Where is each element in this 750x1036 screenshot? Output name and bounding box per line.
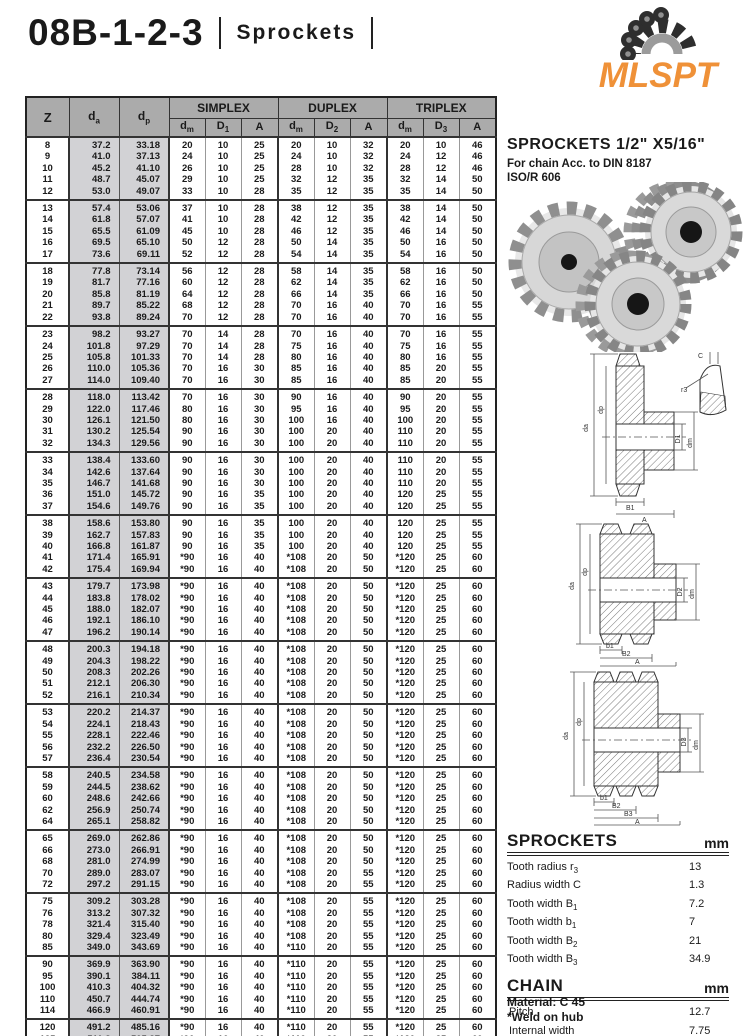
cell: *120 (387, 868, 423, 879)
cell: 16 (205, 893, 241, 907)
cell: 70 (169, 389, 205, 403)
table-row: 85349.0343.69*901640*1102055*1202560 (26, 942, 496, 956)
cell: 230.54 (119, 753, 169, 767)
cell: 16 (205, 541, 241, 552)
cell: 24 (169, 151, 205, 162)
table-row: 2085.881.19641228661435661650 (26, 289, 496, 300)
cell: 60 (459, 782, 496, 793)
cell: *90 (169, 627, 205, 641)
cell: 57 (26, 753, 69, 767)
cell: 166.8 (69, 541, 119, 552)
cell: 70 (387, 312, 423, 326)
cell: 281.0 (69, 856, 119, 867)
cell: 100 (26, 982, 69, 993)
cell: 25 (423, 593, 459, 604)
catalog-page: 08B-1-2-3 Sprockets MLSPT Z (0, 0, 750, 1036)
cell: 50 (350, 742, 387, 753)
cell: 56 (169, 263, 205, 277)
cell: 93.8 (69, 312, 119, 326)
cell: 16 (205, 489, 241, 500)
table-row: 68281.0274.99*901640*1082050*1202560 (26, 856, 496, 867)
cell: 248.6 (69, 793, 119, 804)
cell: 460.91 (119, 1005, 169, 1019)
page-subtitle: Sprockets (236, 21, 356, 45)
cell: 28 (241, 200, 278, 214)
duplex-section-diagram: da dp D2 dm b1 B2 A (540, 520, 745, 668)
spec-label: Tooth width b1 (507, 915, 689, 933)
cell: 485.16 (119, 1019, 169, 1033)
cell: 16 (205, 478, 241, 489)
cell: 60 (459, 615, 496, 626)
cell: 25 (423, 753, 459, 767)
cell: 60 (459, 830, 496, 844)
cell: *90 (169, 931, 205, 942)
cell: *108 (278, 868, 314, 879)
col-header-a: A (459, 118, 496, 137)
cell: 50 (350, 641, 387, 655)
cell: 28 (241, 300, 278, 311)
cell: *90 (169, 919, 205, 930)
cell: *120 (387, 578, 423, 592)
cell: 120 (387, 489, 423, 500)
cell: 60 (459, 1019, 496, 1033)
cell: 45 (169, 226, 205, 237)
cell: 25 (423, 868, 459, 879)
cell: *90 (169, 578, 205, 592)
cell: 206.30 (119, 678, 169, 689)
cell: 27 (26, 375, 69, 389)
cell: 16 (314, 415, 350, 426)
col-header-dm: dm (387, 118, 423, 137)
table-row: 1877.873.14561228581435581650 (26, 263, 496, 277)
cell: 25 (423, 641, 459, 655)
cell: 40 (241, 552, 278, 563)
cell: 40 (241, 856, 278, 867)
cell: 25 (423, 667, 459, 678)
cell: 50 (278, 237, 314, 248)
cell: 20 (314, 452, 350, 466)
cell: 100 (278, 501, 314, 515)
cell: 70 (387, 326, 423, 340)
cell: 138.4 (69, 452, 119, 466)
cell: 70 (169, 326, 205, 340)
cell: 50 (350, 767, 387, 781)
cell: 20 (314, 1005, 350, 1019)
row-group: 65269.0262.86*901640*1082050*12025606627… (26, 830, 496, 893)
cell: 61.8 (69, 214, 119, 225)
cell: 50 (350, 627, 387, 641)
cell: 46 (459, 151, 496, 162)
cell: 28 (241, 312, 278, 326)
cell: *120 (387, 656, 423, 667)
group-header-duplex: DUPLEX (278, 97, 387, 118)
table-row: 41171.4165.91*901640*1082050*1202560 (26, 552, 496, 563)
cell: 59 (26, 782, 69, 793)
cell: 49 (26, 656, 69, 667)
cell: 12 (314, 226, 350, 237)
cell: 10 (205, 226, 241, 237)
cell: *90 (169, 971, 205, 982)
cell: 28 (278, 163, 314, 174)
cell: 69.5 (69, 237, 119, 248)
cell: 50 (350, 816, 387, 830)
cell: 20 (314, 956, 350, 970)
cell: 50 (459, 289, 496, 300)
cell: 50 (459, 277, 496, 288)
cell: 55 (459, 489, 496, 500)
cell: 16 (205, 641, 241, 655)
dim-label-D1: D1 (675, 434, 682, 443)
cell: 274.99 (119, 856, 169, 867)
cell: 129.56 (119, 438, 169, 452)
table-row: 30126.1121.5080163010016401002055 (26, 415, 496, 426)
cell: 90 (169, 426, 205, 437)
cell: *108 (278, 753, 314, 767)
cell: 50 (350, 690, 387, 704)
cell: 165.91 (119, 552, 169, 563)
cell: *120 (387, 982, 423, 993)
spec-label: Radius width C (507, 878, 689, 896)
cell: 250.74 (119, 805, 169, 816)
cell: 40 (241, 782, 278, 793)
cell: 30 (26, 415, 69, 426)
cell: 190.14 (119, 627, 169, 641)
cell: 12 (205, 237, 241, 248)
group-header-triplex: TRIPLEX (387, 97, 496, 118)
cell: *110 (278, 1005, 314, 1019)
table-row: 110450.7444.74*901640*1102055*1202560 (26, 994, 496, 1005)
cell: 57.4 (69, 200, 119, 214)
cell: 60 (459, 667, 496, 678)
cell: 105.8 (69, 352, 119, 363)
cell: 117.46 (119, 404, 169, 415)
cell: *108 (278, 690, 314, 704)
cell: 60 (459, 604, 496, 615)
cell: 50 (350, 805, 387, 816)
cell: 20 (314, 467, 350, 478)
cell: 16 (205, 753, 241, 767)
cell: *108 (278, 719, 314, 730)
cell: 25 (423, 704, 459, 718)
cell: 20 (26, 289, 69, 300)
table-row: 1565.561.09451028461235461450 (26, 226, 496, 237)
cell: 8 (26, 137, 69, 151)
cell: 12 (205, 289, 241, 300)
cell: 35 (350, 263, 387, 277)
cell: *120 (387, 856, 423, 867)
cell: 182.07 (119, 604, 169, 615)
cell: 58 (278, 263, 314, 277)
cell: 25 (26, 352, 69, 363)
cell: 16 (205, 552, 241, 563)
cell: 14 (423, 226, 459, 237)
cell: 41.0 (69, 151, 119, 162)
cell: *108 (278, 830, 314, 844)
dim-label-da: da (583, 424, 590, 432)
cell: 297.2 (69, 879, 119, 893)
cell: 32 (350, 137, 387, 151)
cell: 61.09 (119, 226, 169, 237)
cell: 28 (241, 214, 278, 225)
cell: 25 (423, 730, 459, 741)
col-header-d3: D3 (423, 118, 459, 137)
cell: 10 (314, 151, 350, 162)
col-header-z: Z (26, 97, 69, 137)
cell: 25 (423, 552, 459, 563)
cell: 85 (278, 375, 314, 389)
cell: 40 (241, 593, 278, 604)
cell: 72 (26, 879, 69, 893)
cell: 50 (459, 214, 496, 225)
row-group: 75309.2303.28*901640*1082055*12025607631… (26, 893, 496, 956)
cell: 16 (205, 704, 241, 718)
cell: *120 (387, 627, 423, 641)
cell: 105.36 (119, 363, 169, 374)
cell: 31 (26, 426, 69, 437)
cell: 146.7 (69, 478, 119, 489)
cell: *120 (387, 956, 423, 970)
cell: 289.0 (69, 868, 119, 879)
cell: 70 (387, 300, 423, 311)
cell: 16 (205, 389, 241, 403)
table-row: 50208.3202.26*901640*1082050*1202560 (26, 667, 496, 678)
cell: *110 (278, 994, 314, 1005)
cell: *120 (387, 931, 423, 942)
cell: 35 (350, 226, 387, 237)
cell: 60 (459, 956, 496, 970)
cell: 78 (26, 919, 69, 930)
spec-value: 7 (689, 915, 729, 933)
cell: 45.2 (69, 163, 119, 174)
cell: 66 (387, 289, 423, 300)
cell: 47 (26, 627, 69, 641)
cell: *90 (169, 552, 205, 563)
cell: 466.9 (69, 1005, 119, 1019)
cell: *110 (278, 971, 314, 982)
cell: 80 (26, 931, 69, 942)
cell: 35 (278, 186, 314, 200)
cell: 80 (278, 352, 314, 363)
cell: 55 (26, 730, 69, 741)
cell: 40 (241, 604, 278, 615)
cell: *120 (387, 719, 423, 730)
cell: 120 (26, 1019, 69, 1033)
cell: 55 (350, 994, 387, 1005)
cell: *108 (278, 627, 314, 641)
spec-value: 7.2 (689, 897, 729, 915)
chain-spec-unit: mm (704, 980, 729, 996)
cell: 55 (459, 452, 496, 466)
cell: 14 (423, 186, 459, 200)
cell: 40 (241, 908, 278, 919)
cell: 16 (205, 578, 241, 592)
cell: 130.2 (69, 426, 119, 437)
cell: 20 (314, 541, 350, 552)
cell: *90 (169, 879, 205, 893)
cell: 20 (423, 363, 459, 374)
cell: 60 (459, 753, 496, 767)
row-group: 28118.0113.4270163090164090205529122.011… (26, 389, 496, 452)
cell: 16 (205, 982, 241, 993)
cell: *108 (278, 816, 314, 830)
cell: 37.2 (69, 137, 119, 151)
cell: 40 (350, 363, 387, 374)
cell: 16 (205, 793, 241, 804)
cell: 55 (459, 530, 496, 541)
cell: 214.37 (119, 704, 169, 718)
cell: 16 (205, 856, 241, 867)
cell: 12 (205, 277, 241, 288)
cell: *90 (169, 1019, 205, 1033)
cell: *108 (278, 593, 314, 604)
cell: 204.3 (69, 656, 119, 667)
cell: 208.3 (69, 667, 119, 678)
cell: 70 (278, 300, 314, 311)
spec-label: Tooth width B2 (507, 934, 689, 952)
cell: 20 (314, 742, 350, 753)
cell: *108 (278, 845, 314, 856)
cell: 73.6 (69, 249, 119, 263)
cell: 218.43 (119, 719, 169, 730)
cell: 161.87 (119, 541, 169, 552)
cell: 60 (459, 942, 496, 956)
cell: *120 (387, 730, 423, 741)
cell: 100 (278, 426, 314, 437)
cell: 157.83 (119, 530, 169, 541)
cell: 12 (205, 300, 241, 311)
cell: 309.2 (69, 893, 119, 907)
cell: 16 (205, 767, 241, 781)
spec-value: 21 (689, 934, 729, 952)
col-header-a: A (241, 118, 278, 137)
cell: 16 (205, 604, 241, 615)
duplex-sprocket-image (581, 256, 686, 352)
cell: 40 (350, 415, 387, 426)
cell: 16 (423, 341, 459, 352)
table-row: 27114.0109.40701630851640852055 (26, 375, 496, 389)
table-row: 28118.0113.42701630901640902055 (26, 389, 496, 403)
cell: 25 (241, 174, 278, 185)
cell: *90 (169, 994, 205, 1005)
spec-row: Radius width C1.3 (507, 878, 729, 896)
cell: 303.28 (119, 893, 169, 907)
cell: 54 (26, 719, 69, 730)
table-row: 43179.7173.98*901640*1082050*1202560 (26, 578, 496, 592)
cell: 75 (278, 341, 314, 352)
cell: 20 (314, 719, 350, 730)
cell: 55 (350, 956, 387, 970)
cell: 42 (26, 564, 69, 578)
cell: 60 (169, 277, 205, 288)
dim-label-da: da (569, 582, 576, 590)
cell: 44 (26, 593, 69, 604)
dim-label-dm: dm (687, 438, 694, 448)
cell: 20 (314, 578, 350, 592)
cell: 40 (241, 793, 278, 804)
cell: 16 (205, 919, 241, 930)
table-row: 24101.897.29701428751640751655 (26, 341, 496, 352)
cell: 35 (241, 501, 278, 515)
cell: 89.7 (69, 300, 119, 311)
cell: 65 (26, 830, 69, 844)
dim-label-dm: dm (693, 740, 700, 750)
table-row: 70289.0283.07*901640*1082055*1202560 (26, 868, 496, 879)
cell: 50 (350, 593, 387, 604)
cell: 10 (205, 163, 241, 174)
cell: *90 (169, 942, 205, 956)
spec-value: 7.75 (689, 1024, 729, 1036)
spec-label: Internal width (509, 1024, 689, 1036)
cell: 16 (205, 438, 241, 452)
cell: 121.50 (119, 415, 169, 426)
cell: 60 (459, 856, 496, 867)
cell: 273.0 (69, 845, 119, 856)
cell: 30 (241, 438, 278, 452)
cell: 40 (241, 805, 278, 816)
cell: 60 (459, 730, 496, 741)
cell: 25 (423, 767, 459, 781)
cell: 14 (205, 326, 241, 340)
cell: 42 (387, 214, 423, 225)
cell: 20 (314, 489, 350, 500)
row-group: 48200.3194.18*901640*1082050*12025604920… (26, 641, 496, 704)
cell: *120 (387, 845, 423, 856)
spec-label: Tooth width B3 (507, 952, 689, 970)
cell: 60 (459, 564, 496, 578)
table-row: 51212.1206.30*901640*1082050*1202560 (26, 678, 496, 689)
table-row: 47196.2190.14*901640*1082050*1202560 (26, 627, 496, 641)
sprockets-spec-title: SPROCKETS (507, 831, 617, 851)
cell: 40 (241, 615, 278, 626)
cell: 10 (205, 151, 241, 162)
cell: 64 (169, 289, 205, 300)
cell: 25 (423, 830, 459, 844)
cell: 20 (314, 615, 350, 626)
cell: 50 (350, 615, 387, 626)
cell: 40 (350, 515, 387, 529)
cell: 244.5 (69, 782, 119, 793)
cell: 55 (350, 982, 387, 993)
cell: 10 (423, 137, 459, 151)
cell: 20 (314, 604, 350, 615)
cell: 40 (350, 452, 387, 466)
cell: 16 (205, 690, 241, 704)
cell: 16 (205, 1005, 241, 1019)
cell: 25 (423, 942, 459, 956)
table-row: 57236.4230.54*901640*1082050*1202560 (26, 753, 496, 767)
cell: 60 (459, 641, 496, 655)
dim-label-da: da (563, 732, 570, 740)
cell: 20 (423, 375, 459, 389)
cell: 25 (423, 627, 459, 641)
cell: 40 (350, 530, 387, 541)
cell: 50 (350, 856, 387, 867)
cell: 32 (278, 174, 314, 185)
cell: 16 (205, 515, 241, 529)
cell: 313.2 (69, 908, 119, 919)
cell: 20 (314, 552, 350, 563)
cell: *120 (387, 604, 423, 615)
cell: 12 (26, 186, 69, 200)
cell: 25 (423, 994, 459, 1005)
cell: 23 (26, 326, 69, 340)
cell: *90 (169, 564, 205, 578)
cell: 90 (169, 438, 205, 452)
cell: 55 (459, 326, 496, 340)
cell: 110 (387, 438, 423, 452)
cell: 41.10 (119, 163, 169, 174)
cell: 40 (350, 501, 387, 515)
